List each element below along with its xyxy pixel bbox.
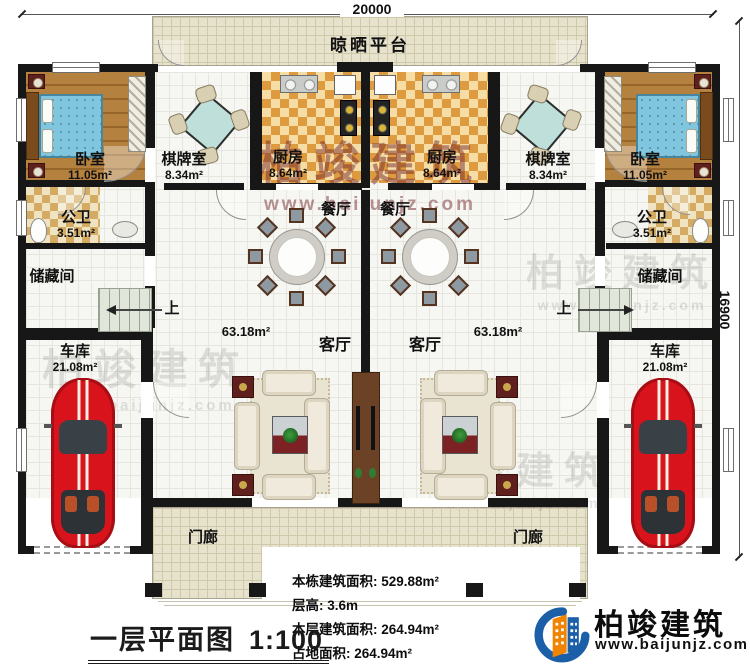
label-up-left: 上 — [160, 301, 184, 318]
room-area: 21.08m² — [35, 361, 115, 374]
label-kitchen-left: 厨房 8.64m² — [248, 150, 328, 180]
wall-kitchen-center — [361, 72, 370, 188]
door-opening — [145, 256, 155, 286]
pillow — [42, 99, 53, 123]
label-kitchen-right: 厨房 8.64m² — [402, 150, 482, 180]
window — [16, 428, 27, 472]
pillow — [686, 129, 697, 153]
room-name: 公卫 — [36, 210, 116, 227]
dining-chair — [381, 249, 396, 264]
wall-garage-bottom-right-a — [597, 546, 618, 554]
dining-chair — [248, 249, 263, 264]
car-seat — [667, 496, 679, 512]
label-bedroom-right: 卧室 11.05m² — [603, 152, 687, 182]
porch-column — [145, 583, 162, 597]
label-bath-right: 公卫 3.51m² — [612, 210, 692, 240]
door-opening — [276, 184, 318, 190]
plant — [283, 428, 298, 443]
room-area: 8.34m² — [506, 169, 590, 182]
sofa — [434, 474, 488, 500]
dining-chair — [448, 217, 469, 238]
label-living-right: 客厅 — [389, 337, 461, 355]
room-name: 车库 — [625, 344, 705, 361]
dining-table-top — [269, 229, 325, 285]
car-mirror — [44, 424, 52, 428]
plant-small — [355, 468, 362, 478]
dining-chair — [390, 275, 411, 296]
brand-url: www.baijunjz.com — [595, 636, 748, 653]
room-area: 3.51m² — [612, 227, 692, 240]
door-opening — [432, 184, 474, 190]
window — [52, 62, 100, 73]
card-table-top — [179, 93, 241, 155]
side-table — [232, 474, 254, 496]
window — [723, 200, 734, 236]
car-seat — [65, 496, 77, 512]
dining-chair — [289, 291, 304, 306]
room-name: 厨房 — [402, 150, 482, 167]
dining-chair — [315, 275, 336, 296]
tv-left — [356, 406, 360, 450]
pillow — [686, 99, 697, 123]
plant-small — [369, 468, 376, 478]
room-area: 8.34m² — [142, 169, 226, 182]
closet-right — [604, 76, 622, 152]
dining-chair — [331, 249, 346, 264]
bed-headboard — [700, 92, 713, 160]
closet-left — [128, 76, 146, 152]
plan-title-text: 一层平面图 — [90, 625, 235, 655]
room-area: 8.64m² — [402, 167, 482, 180]
door-opening — [597, 382, 609, 418]
sofa — [434, 370, 488, 396]
label-storage-right: 储藏间 — [620, 269, 700, 286]
floor-plan-canvas: 柏竣建筑 www.baijunjz.com 柏竣建筑 www.baijunjz.… — [0, 0, 750, 669]
car-mirror — [114, 424, 122, 428]
label-bedroom-left: 卧室 11.05m² — [48, 152, 132, 182]
dining-chair — [315, 217, 336, 238]
room-area: 8.64m² — [248, 167, 328, 180]
stairs-arrow-head — [624, 305, 634, 315]
stove-right — [373, 100, 390, 136]
nightstand — [694, 74, 711, 89]
plan-title: 一层平面图1:100 — [88, 618, 329, 664]
label-bath-left: 公卫 3.51m² — [36, 210, 116, 240]
dining-chair — [448, 275, 469, 296]
room-area: 11.05m² — [603, 169, 687, 182]
nightstand — [694, 163, 711, 178]
sofa — [262, 370, 316, 396]
stairs-arrow-line — [116, 309, 162, 311]
door-opening — [595, 256, 605, 286]
dimension-line-right — [739, 20, 740, 558]
room-name: 车库 — [35, 344, 115, 361]
brand-logo-icon — [534, 604, 590, 664]
sofa — [262, 474, 316, 500]
window — [648, 62, 696, 73]
wall-garage-bottom-left-b — [130, 546, 153, 554]
label-porch-left: 门廊 — [163, 530, 243, 547]
refrigerator — [334, 75, 356, 95]
label-garage-right: 车库 21.08m² — [625, 344, 705, 374]
wall-garage-inner-right — [597, 340, 609, 546]
stove-left — [340, 100, 357, 136]
dimension-tick — [709, 10, 717, 18]
wall-bath-bottom-right — [606, 243, 720, 249]
plant — [452, 428, 467, 443]
dining-chair — [422, 291, 437, 306]
sofa — [234, 402, 260, 470]
car-mirror — [624, 424, 632, 428]
window — [723, 98, 734, 142]
car-seat — [87, 496, 99, 512]
label-drying-platform: 晾晒平台 — [280, 36, 460, 55]
dining-chair — [257, 217, 278, 238]
kitchen-sink-left — [280, 75, 318, 93]
sofa-set-left — [232, 370, 332, 502]
dining-table-left — [247, 207, 347, 307]
brand-block: 柏竣建筑 www.baijunjz.com — [534, 600, 744, 666]
wall-kitchen-center-cap — [337, 62, 393, 72]
bed-headboard — [26, 92, 39, 160]
label-up-right: 上 — [552, 301, 576, 318]
label-dining-right: 餐厅 — [359, 202, 431, 219]
plan-scale: 1:100 — [249, 625, 323, 655]
kitchen-sink-right — [422, 75, 460, 93]
dining-table-top — [402, 229, 458, 285]
wall-garage-bottom-left-a — [18, 546, 34, 554]
room-name: 卧室 — [603, 152, 687, 169]
porch-column — [569, 583, 586, 597]
label-storage-left: 储藏间 — [12, 269, 92, 286]
car-left — [51, 378, 115, 548]
dimension-width-label: 20000 — [340, 1, 404, 17]
window — [723, 428, 734, 472]
label-living-left: 客厅 — [299, 337, 371, 355]
car-seat — [645, 496, 657, 512]
side-table — [496, 376, 518, 398]
car-mirror — [694, 424, 702, 428]
dining-chair — [464, 249, 479, 264]
room-name: 棋牌室 — [142, 152, 226, 169]
room-area: 21.08m² — [625, 361, 705, 374]
info-building-total-area: 本栋建筑面积: 529.88m² — [292, 570, 492, 594]
door-opening — [141, 382, 153, 418]
dining-chair — [390, 217, 411, 238]
label-living-area-left: 63.18m² — [210, 325, 282, 340]
room-name: 卧室 — [48, 152, 132, 169]
coffee-table — [272, 416, 308, 454]
wall-garage-bottom-right-b — [702, 546, 720, 554]
coffee-table — [442, 416, 478, 454]
wall-chess-bottom-left — [164, 183, 244, 190]
label-living-area-right: 63.18m² — [462, 325, 534, 340]
side-table — [496, 474, 518, 496]
stairs-arrow-line — [578, 309, 624, 311]
wall-garage-inner-left — [141, 340, 153, 546]
room-area: 3.51m² — [36, 227, 116, 240]
sofa — [490, 402, 516, 470]
tv-right — [371, 406, 375, 450]
car-right — [631, 378, 695, 548]
label-chess-left: 棋牌室 8.34m² — [142, 152, 226, 182]
car-windshield — [639, 420, 687, 454]
dining-chair — [257, 275, 278, 296]
sofa-set-right — [418, 370, 518, 502]
info-floor-height: 层高: 3.6m — [292, 594, 492, 618]
dimension-tick — [735, 553, 743, 561]
porch-column — [249, 583, 266, 597]
room-area: 11.05m² — [48, 169, 132, 182]
wall-bath-bottom-left — [18, 243, 146, 249]
car-windshield — [59, 420, 107, 454]
dining-table-right — [380, 207, 480, 307]
stairs-arrow-head — [106, 305, 116, 315]
side-table — [232, 376, 254, 398]
pillow — [42, 129, 53, 153]
dimension-height-label: 16900 — [717, 277, 733, 343]
label-chess-right: 棋牌室 8.34m² — [506, 152, 590, 182]
wall-chess-bottom-right — [506, 183, 586, 190]
nightstand — [28, 74, 45, 89]
nightstand — [28, 163, 45, 178]
refrigerator — [374, 75, 396, 95]
label-garage-left: 车库 21.08m² — [35, 344, 115, 374]
window — [16, 200, 27, 236]
room-name: 公卫 — [612, 210, 692, 227]
label-porch-right: 门廊 — [488, 530, 568, 547]
room-name: 厨房 — [248, 150, 328, 167]
toilet-right — [692, 218, 709, 243]
room-name: 棋牌室 — [506, 152, 590, 169]
